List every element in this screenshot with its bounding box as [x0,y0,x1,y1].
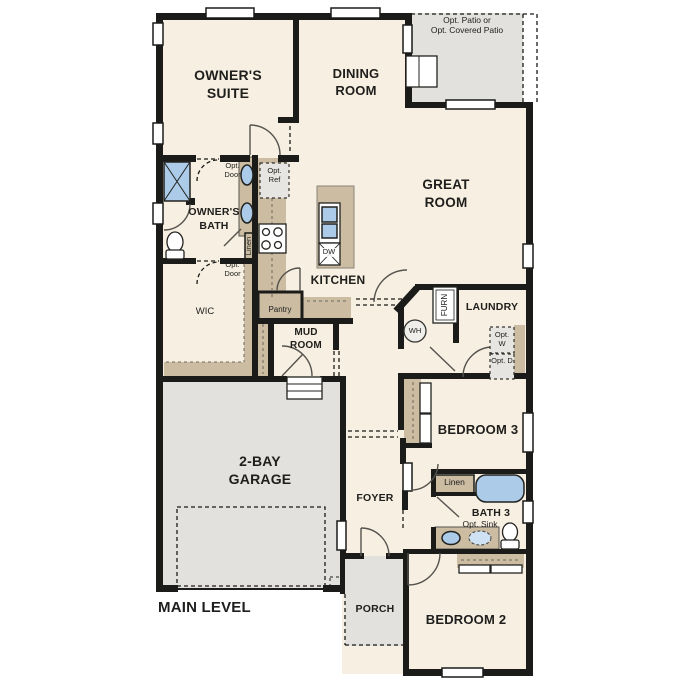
annotation-wh: WH [404,327,426,336]
patio-door-unit [406,56,437,87]
porch-area [345,556,404,646]
floor-plan-drawing [0,0,687,687]
window [442,668,483,677]
annotation-opt-w: Opt. W [491,331,513,348]
room-label-great-room: GREAT ROOM [406,176,486,211]
opt-sink-fixture [469,531,491,545]
window [446,100,495,109]
bath3-door-jamb [403,463,412,491]
room-label-mud-room: MUD ROOM [278,326,334,352]
annotation-opt-door-2: Opt. Door [219,261,246,278]
window [523,501,533,523]
foyer-sidelight-window [337,521,346,550]
window [153,203,163,224]
annotation-opt-sink: Opt. Sink [457,520,503,530]
bathtub [476,475,524,502]
annotation-dw: DW [320,248,338,257]
sink [442,532,460,545]
closet-door-panel [491,565,522,573]
annotation-opt-ref: Opt. Ref [261,167,288,184]
island-sink-basin [322,224,337,238]
annotation-linen-owners: Linen [245,233,257,259]
room-label-owners-suite: OWNER'S SUITE [171,66,285,102]
annotation-linen-bath3: Linen [436,478,473,488]
closet-door-panel [459,565,490,573]
window [206,8,254,18]
island-sink-basin [322,207,337,222]
room-label-laundry: LAUNDRY [463,301,521,315]
garage-steps [287,377,322,399]
window [153,123,163,144]
annotation-patio: Opt. Patio or Opt. Covered Patio [410,16,524,36]
room-label-porch: PORCH [352,603,398,617]
room-label-bedroom2: BEDROOM 2 [411,612,521,629]
annotation-opt-d: Opt. D [491,357,513,366]
room-label-owners-bath: OWNER'S BATH [179,206,249,233]
floor-plan: OWNER'S SUITE DINING ROOM GREAT ROOM OWN… [0,0,687,687]
room-label-dining-room: DINING ROOM [317,66,395,100]
room-label-kitchen: KITCHEN [305,273,371,289]
window [523,244,533,268]
toilet-bowl [167,232,183,252]
toilet-tank [501,540,519,549]
window [153,23,163,45]
room-label-wic: WIC [185,307,225,318]
toilet-tank [166,250,184,259]
annotation-patio-line2: Opt. Covered Patio [410,26,524,36]
wic-shelf-bottom [164,362,253,377]
room-label-pantry: Pantry [259,305,301,314]
room-label-garage: 2-BAY GARAGE [212,452,308,488]
room-label-bedroom3: BEDROOM 3 [423,422,533,439]
closet-door-panel [420,383,431,413]
toilet-bowl [503,523,518,541]
annotation-opt-door-1: Opt. Door [219,162,246,179]
laundry-counter [514,325,525,379]
plan-title: MAIN LEVEL [158,598,258,618]
annotation-furn: FURN [440,291,452,319]
room-label-foyer: FOYER [352,492,398,506]
window [331,8,380,18]
